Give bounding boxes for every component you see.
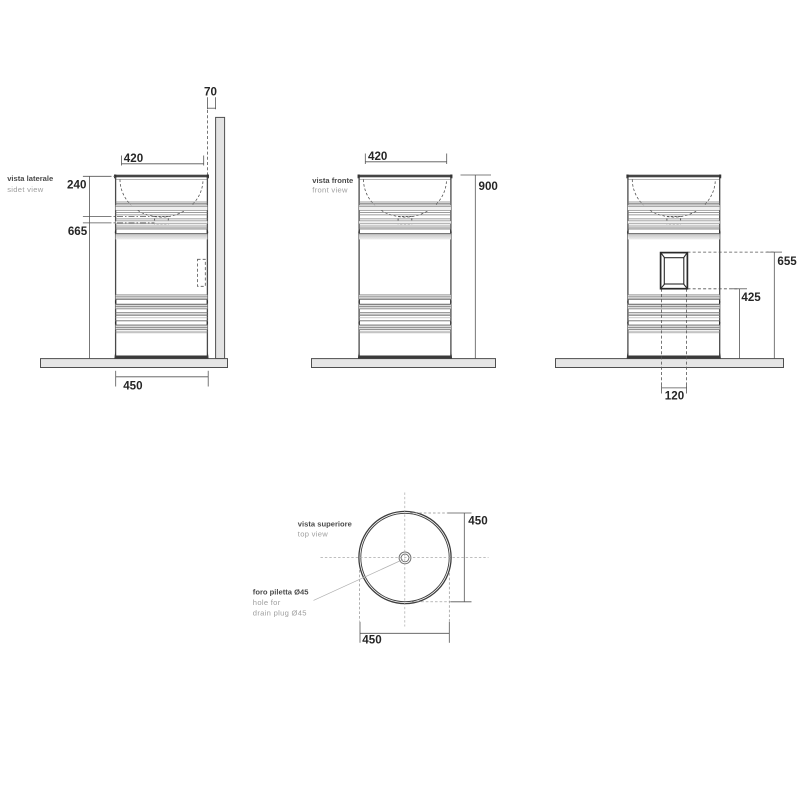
svg-text:120: 120 (665, 389, 684, 402)
svg-text:foro piletta Ø45: foro piletta Ø45 (253, 587, 309, 596)
svg-text:425: 425 (741, 291, 761, 304)
svg-text:vista laterale: vista laterale (7, 174, 53, 183)
svg-text:450: 450 (362, 633, 381, 646)
svg-text:450: 450 (123, 379, 142, 392)
svg-text:665: 665 (68, 225, 88, 238)
svg-text:front view: front view (312, 185, 348, 194)
svg-text:420: 420 (124, 152, 143, 165)
svg-text:655: 655 (777, 255, 797, 268)
svg-text:450: 450 (468, 515, 487, 528)
svg-text:420: 420 (368, 150, 387, 163)
svg-text:240: 240 (67, 179, 86, 192)
svg-text:hole for: hole for (253, 598, 281, 607)
svg-text:sidet view: sidet view (7, 185, 44, 194)
svg-text:drain plug Ø45: drain plug Ø45 (253, 609, 307, 618)
svg-text:top view: top view (298, 530, 328, 539)
svg-text:vista fronte: vista fronte (312, 176, 353, 185)
svg-text:70: 70 (204, 86, 217, 99)
svg-text:900: 900 (479, 180, 498, 193)
svg-text:vista superiore: vista superiore (298, 520, 352, 529)
